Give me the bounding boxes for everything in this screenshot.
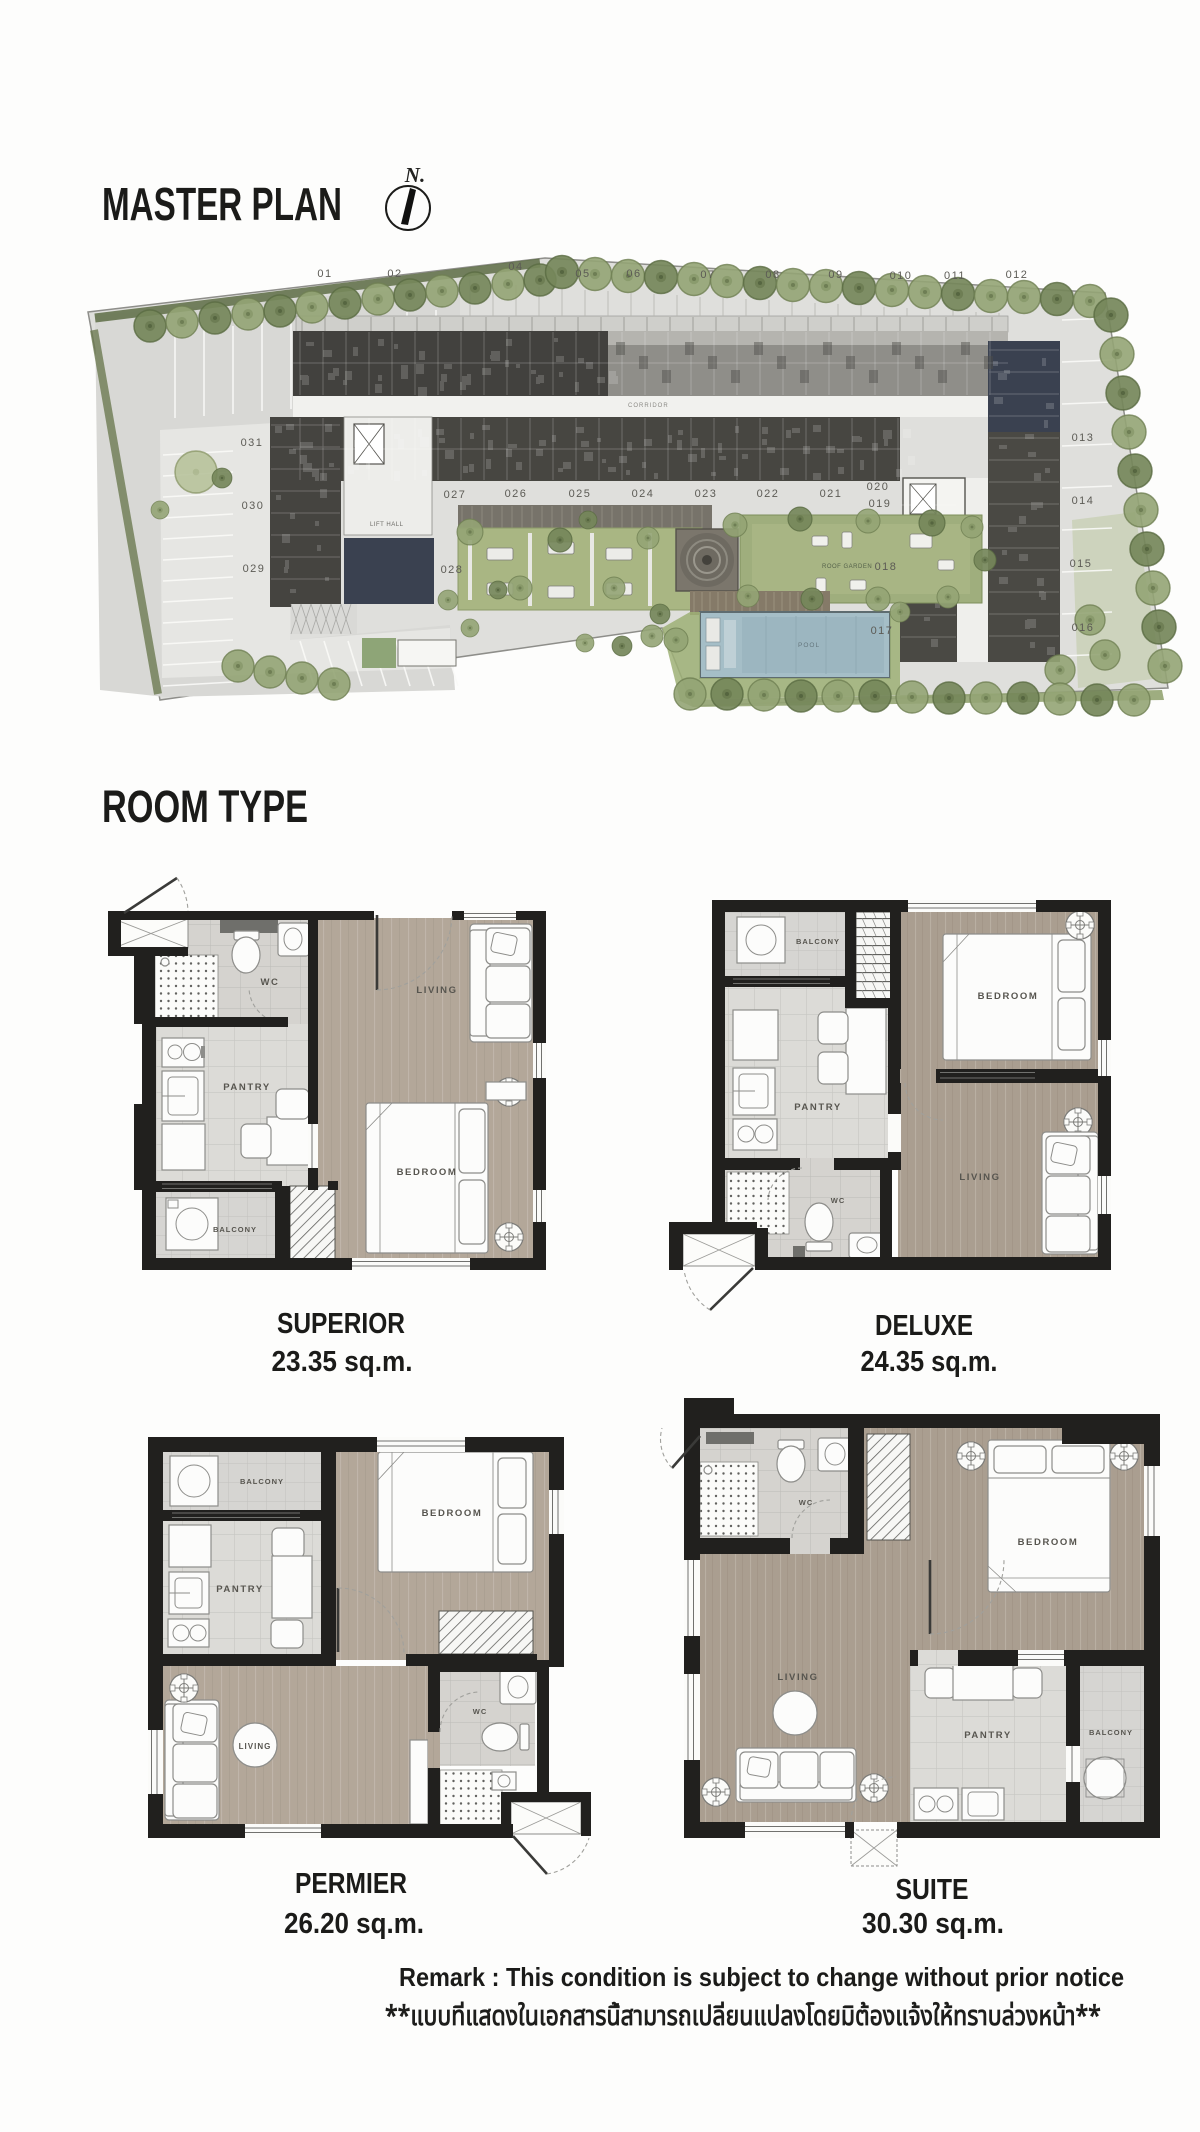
svg-text:06: 06 (626, 268, 641, 280)
svg-text:WC: WC (473, 1707, 488, 1716)
svg-text:SUPERIOR: SUPERIOR (277, 1308, 405, 1340)
svg-text:024: 024 (632, 488, 655, 500)
svg-text:DELUXE: DELUXE (875, 1310, 973, 1342)
svg-text:WC: WC (799, 1498, 814, 1507)
svg-text:08: 08 (765, 269, 780, 281)
svg-text:02: 02 (387, 268, 402, 280)
svg-text:07: 07 (700, 269, 715, 281)
svg-text:028: 028 (441, 564, 464, 576)
svg-text:PERMIER: PERMIER (295, 1868, 407, 1900)
svg-text:029: 029 (243, 563, 266, 575)
svg-text:013: 013 (1072, 432, 1095, 444)
svg-text:PANTRY: PANTRY (794, 1102, 842, 1113)
svg-text:025: 025 (569, 488, 592, 500)
svg-text:020: 020 (867, 481, 890, 493)
svg-text:018: 018 (875, 561, 898, 573)
svg-text:016: 016 (1072, 622, 1095, 634)
svg-text:BALCONY: BALCONY (240, 1477, 284, 1486)
svg-text:30.30 sq.m.: 30.30 sq.m. (862, 1908, 1004, 1940)
svg-text:027: 027 (444, 489, 467, 501)
svg-text:BEDROOM: BEDROOM (1018, 1537, 1079, 1548)
svg-text:04: 04 (508, 261, 523, 273)
svg-text:CORRIDOR: CORRIDOR (628, 403, 669, 409)
svg-text:MASTER PLAN: MASTER PLAN (102, 178, 342, 230)
svg-text:022: 022 (757, 488, 780, 500)
svg-text:BALCONY: BALCONY (213, 1225, 257, 1234)
svg-text:SUITE: SUITE (896, 1874, 969, 1906)
svg-text:011: 011 (944, 270, 966, 282)
svg-text:BALCONY: BALCONY (796, 937, 840, 946)
svg-text:BEDROOM: BEDROOM (397, 1167, 458, 1178)
svg-text:ROOF GARDEN: ROOF GARDEN (822, 564, 872, 570)
svg-text:031: 031 (241, 437, 264, 449)
svg-text:LIVING: LIVING (777, 1672, 818, 1683)
svg-text:015: 015 (1070, 558, 1093, 570)
svg-text:BEDROOM: BEDROOM (978, 991, 1039, 1002)
svg-text:Remark : This condition is sub: Remark : This condition is subject to ch… (399, 1962, 1124, 1992)
svg-text:01: 01 (317, 268, 332, 280)
svg-text:05: 05 (575, 268, 590, 280)
svg-text:26.20 sq.m.: 26.20 sq.m. (284, 1908, 424, 1940)
svg-text:019: 019 (869, 498, 892, 510)
svg-text:LIVING: LIVING (416, 985, 457, 996)
svg-text:23.35 sq.m.: 23.35 sq.m. (272, 1346, 413, 1378)
svg-text:LIVING: LIVING (239, 1742, 272, 1751)
svg-text:09: 09 (828, 269, 843, 281)
svg-text:ROOM TYPE: ROOM TYPE (102, 781, 308, 832)
svg-text:BALCONY: BALCONY (1089, 1728, 1133, 1737)
svg-text:PANTRY: PANTRY (223, 1082, 271, 1093)
svg-text:030: 030 (242, 500, 265, 512)
svg-text:WC: WC (260, 977, 279, 988)
svg-text:BEDROOM: BEDROOM (422, 1508, 483, 1519)
svg-text:WC: WC (831, 1196, 846, 1205)
svg-text:N.: N. (404, 163, 425, 187)
svg-text:017: 017 (871, 625, 894, 637)
svg-text:LIFT HALL: LIFT HALL (370, 522, 404, 528)
svg-text:PANTRY: PANTRY (216, 1584, 264, 1595)
svg-text:026: 026 (505, 488, 528, 500)
svg-text:021: 021 (820, 488, 843, 500)
svg-text:PANTRY: PANTRY (964, 1730, 1012, 1741)
svg-text:24.35 sq.m.: 24.35 sq.m. (861, 1346, 998, 1378)
svg-text:LIVING: LIVING (959, 1172, 1000, 1183)
svg-text:010: 010 (890, 270, 913, 282)
svg-text:012: 012 (1006, 269, 1029, 281)
svg-text:POOL: POOL (798, 642, 820, 649)
svg-text:023: 023 (695, 488, 718, 500)
svg-text:014: 014 (1072, 495, 1095, 507)
